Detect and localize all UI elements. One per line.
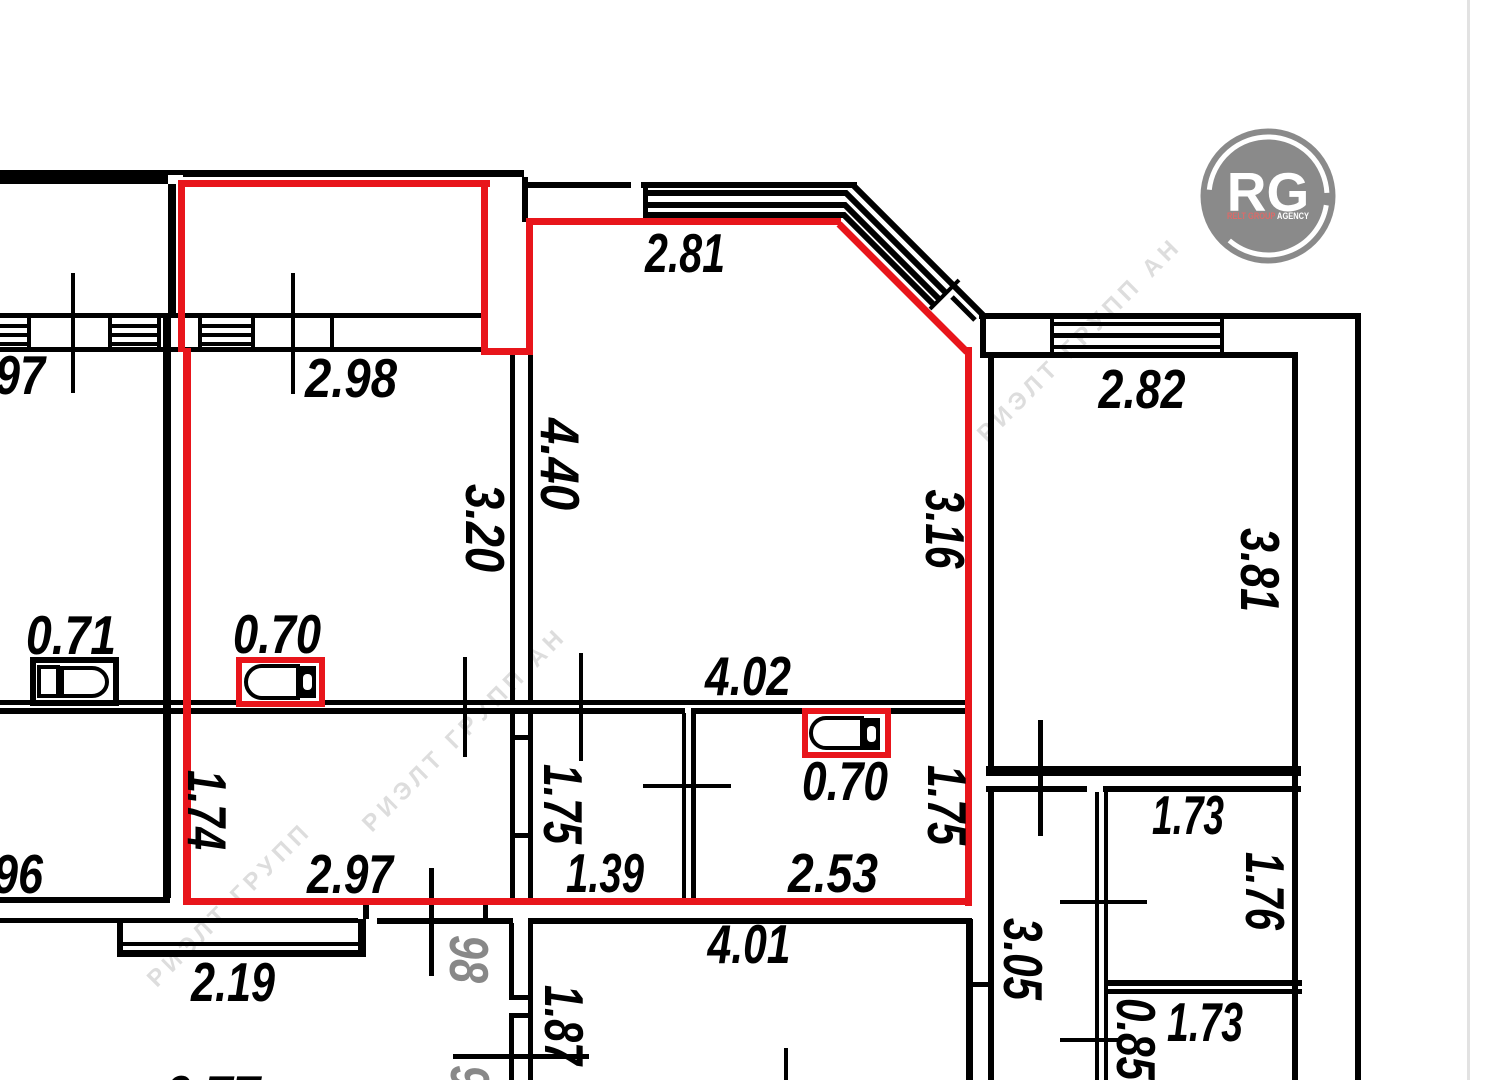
svg-text:1.73: 1.73 (1152, 784, 1224, 846)
svg-text:3.05: 3.05 (992, 918, 1054, 1001)
svg-text:1.73: 1.73 (1167, 991, 1243, 1053)
svg-text:2.97: 2.97 (306, 843, 395, 905)
svg-text:2.82: 2.82 (1098, 358, 1186, 420)
svg-text:97: 97 (0, 344, 47, 406)
svg-text:0.71: 0.71 (26, 604, 116, 666)
svg-text:2.19: 2.19 (190, 951, 275, 1013)
svg-text:1.75: 1.75 (532, 764, 594, 845)
svg-text:1.75: 1.75 (916, 765, 978, 846)
svg-text:1.39: 1.39 (566, 842, 644, 904)
svg-text:1.76: 1.76 (1234, 852, 1296, 930)
svg-text:4.02: 4.02 (704, 645, 791, 707)
svg-text:2.81: 2.81 (644, 222, 725, 284)
svg-text:3.16: 3.16 (914, 490, 976, 569)
svg-text:0.77: 0.77 (164, 1064, 262, 1080)
svg-text:2.53: 2.53 (787, 842, 878, 904)
svg-text:1.87: 1.87 (533, 985, 595, 1067)
svg-text:0.70: 0.70 (802, 750, 888, 812)
svg-text:95: 95 (439, 1065, 501, 1080)
svg-text:3.20: 3.20 (454, 484, 516, 572)
svg-text:0.85: 0.85 (1105, 998, 1167, 1080)
svg-text:98: 98 (438, 935, 500, 983)
svg-text:4.01: 4.01 (707, 913, 791, 975)
svg-text:96: 96 (0, 843, 43, 905)
svg-text:2.98: 2.98 (304, 347, 397, 409)
svg-text:1.74: 1.74 (176, 770, 238, 850)
svg-text:RELT GROUP AGENCY: RELT GROUP AGENCY (1227, 211, 1309, 221)
svg-text:3.81: 3.81 (1229, 528, 1291, 612)
svg-text:4.40: 4.40 (529, 417, 591, 510)
svg-text:0.70: 0.70 (233, 603, 321, 665)
